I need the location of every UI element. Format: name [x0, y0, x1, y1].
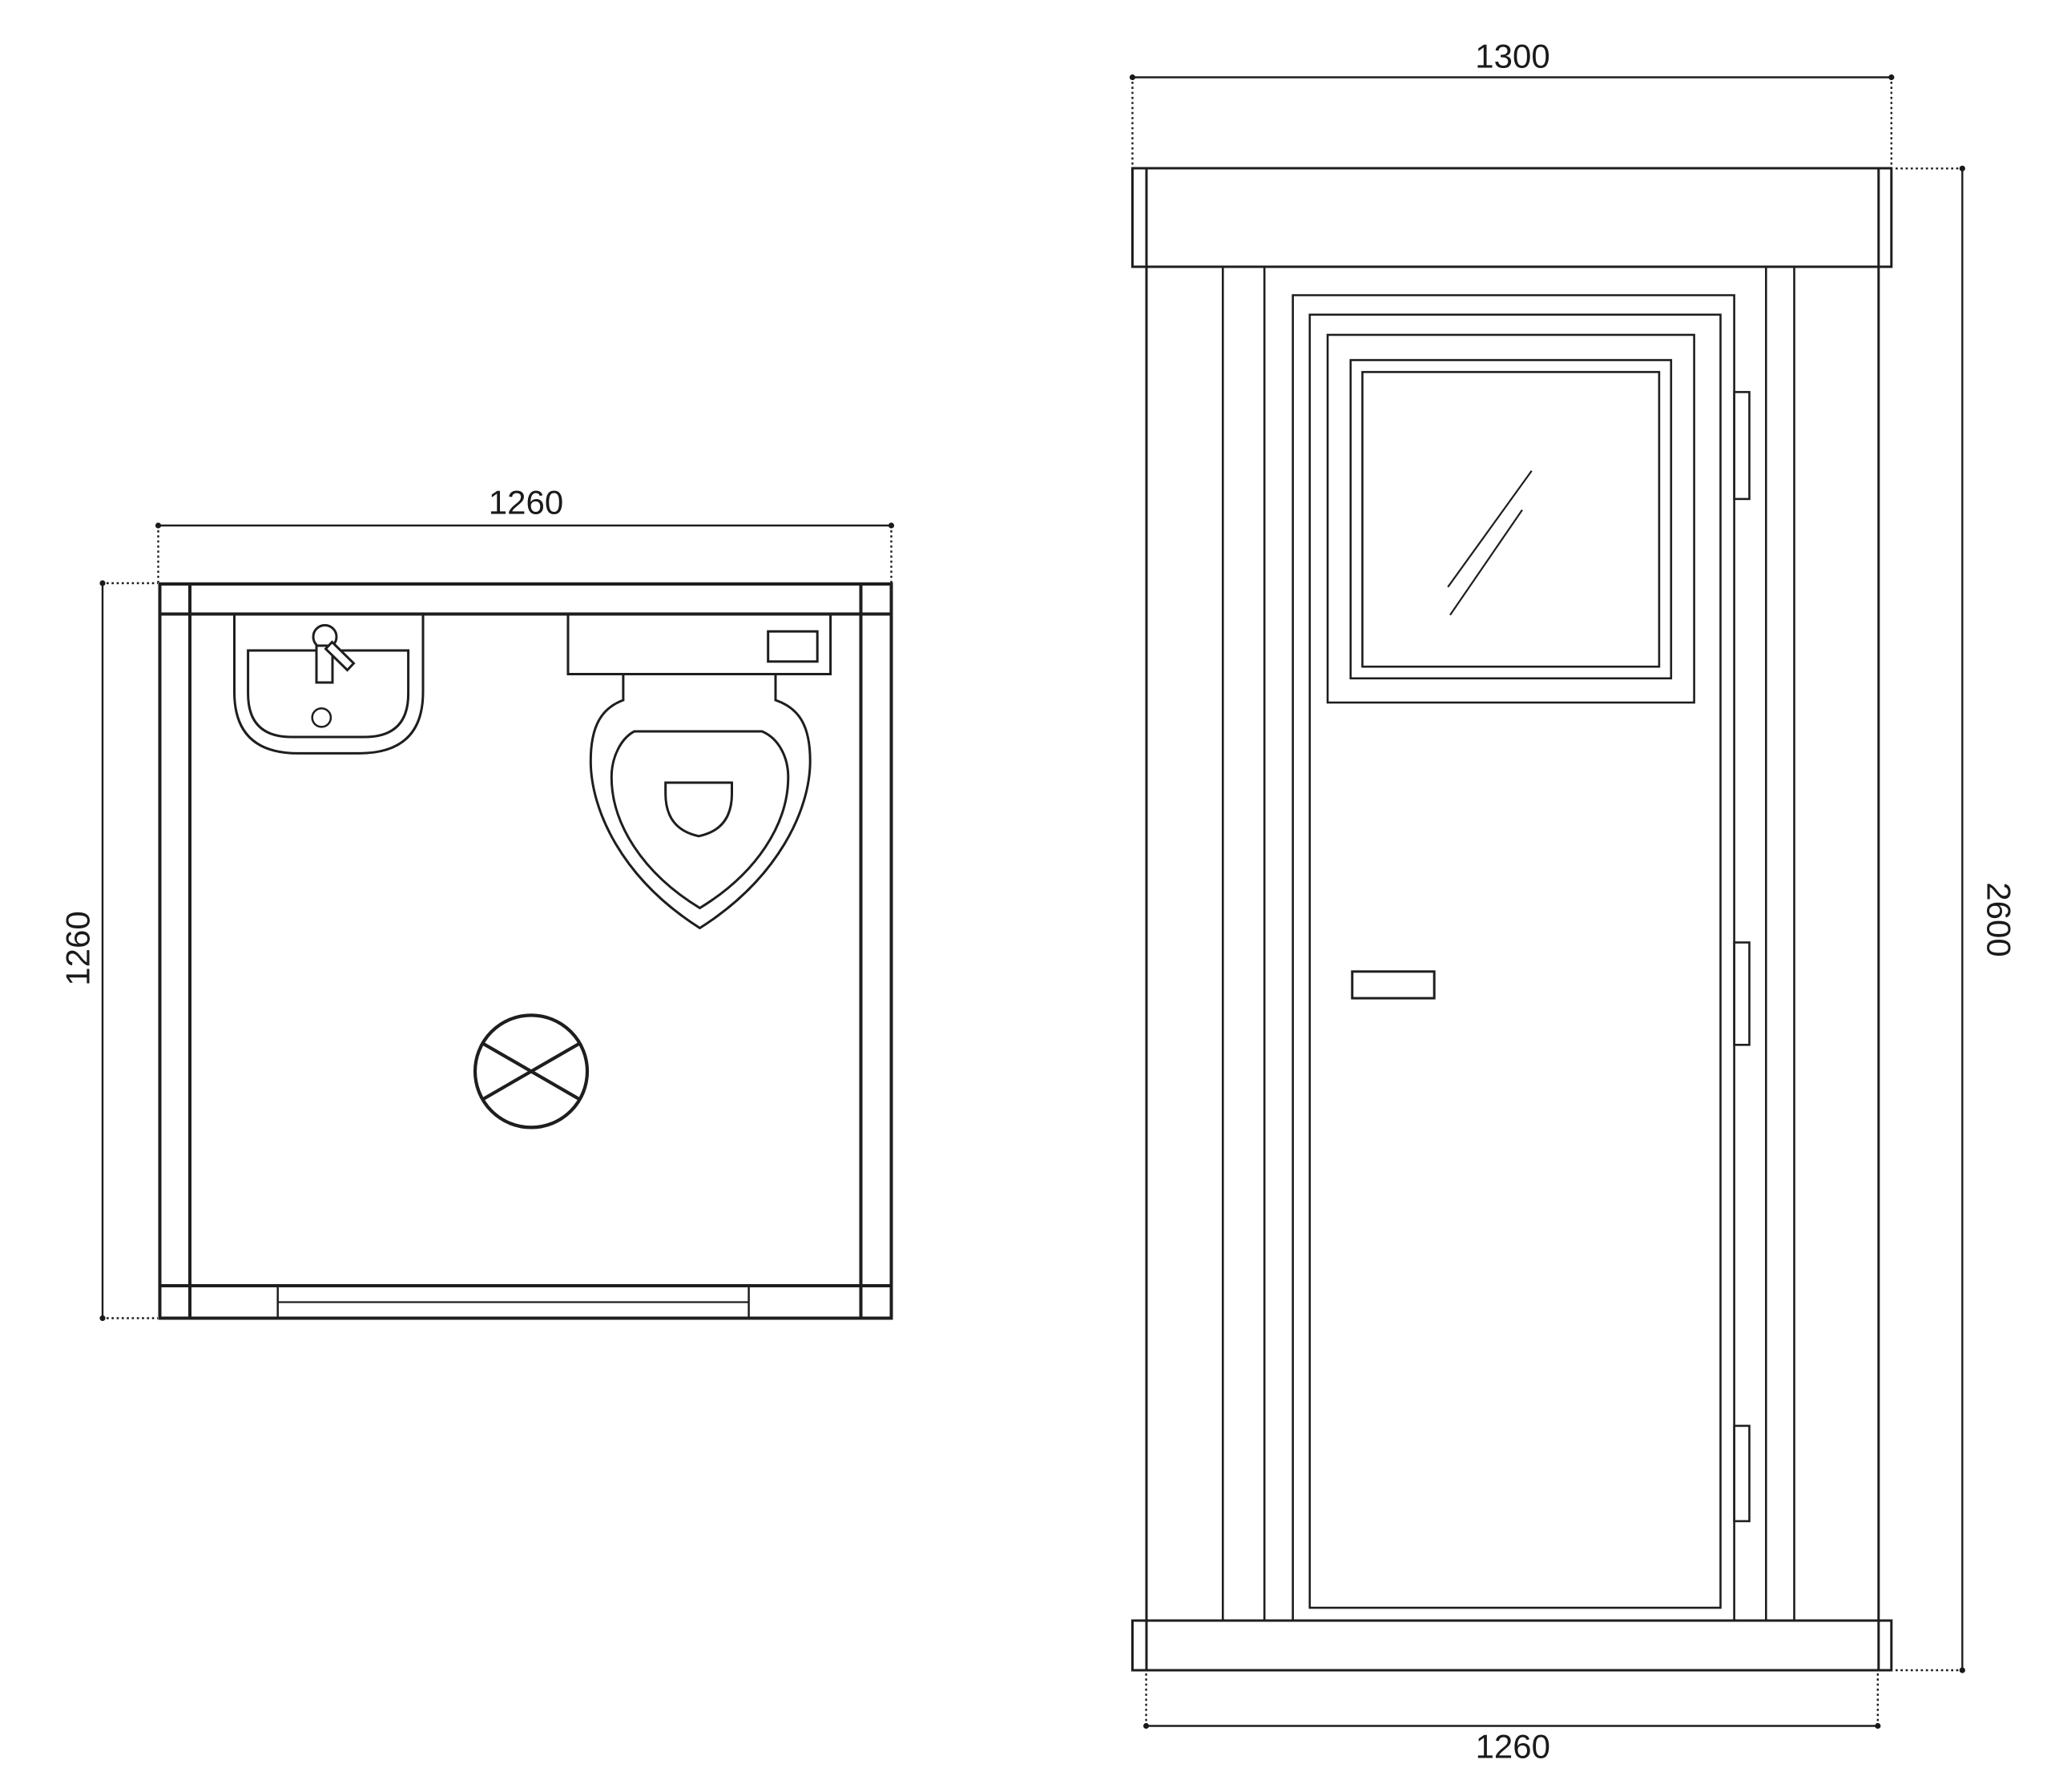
svg-text:2600: 2600	[1980, 882, 2018, 956]
svg-text:1260: 1260	[489, 484, 563, 521]
svg-text:1300: 1300	[1475, 38, 1549, 75]
svg-text:1260: 1260	[1476, 1728, 1550, 1766]
svg-text:1260: 1260	[59, 911, 97, 985]
